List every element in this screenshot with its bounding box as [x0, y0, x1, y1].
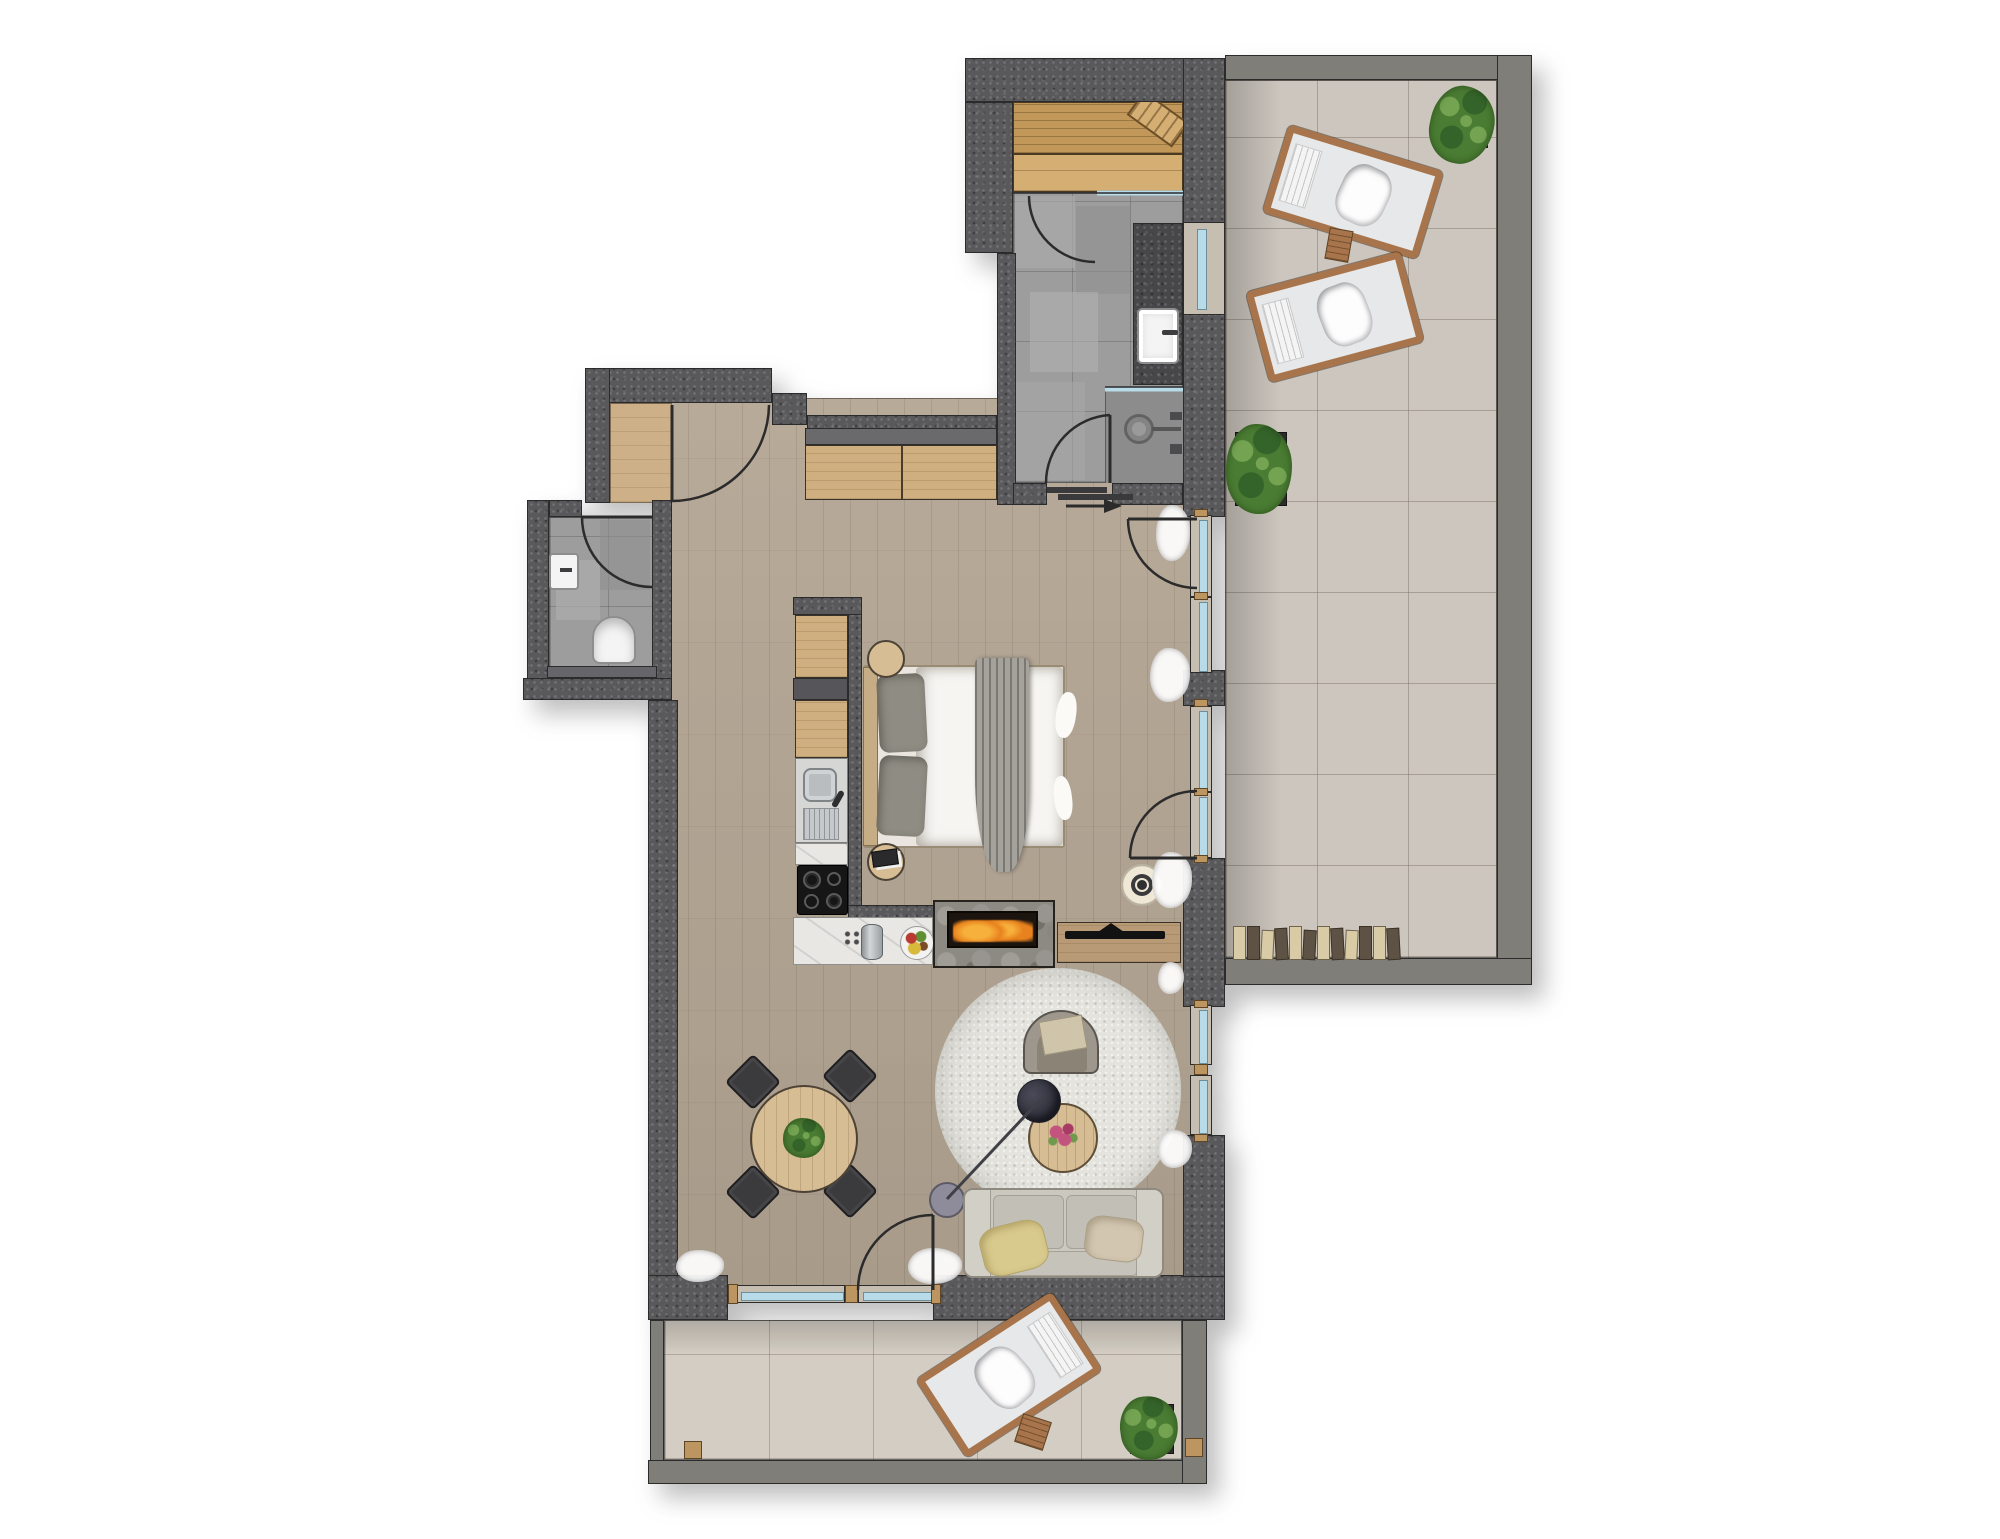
terrace-door-lower-arc: [1130, 791, 1197, 858]
tv-stand: [1098, 923, 1124, 932]
floor-lamp-stem: [947, 1100, 1040, 1199]
bathroom-door-arc: [1046, 415, 1110, 483]
terrace-door-south-arc: [858, 1215, 933, 1290]
linework-overlay: [0, 0, 2000, 1539]
sauna-door-arc: [1029, 196, 1095, 262]
entrance-arrow-head: [1104, 499, 1122, 513]
terrace-door-upper-arc: [1128, 519, 1197, 588]
wc-door-arc: [582, 517, 652, 587]
entry-door-arc: [672, 405, 769, 501]
floor-plan: [0, 0, 2000, 1539]
